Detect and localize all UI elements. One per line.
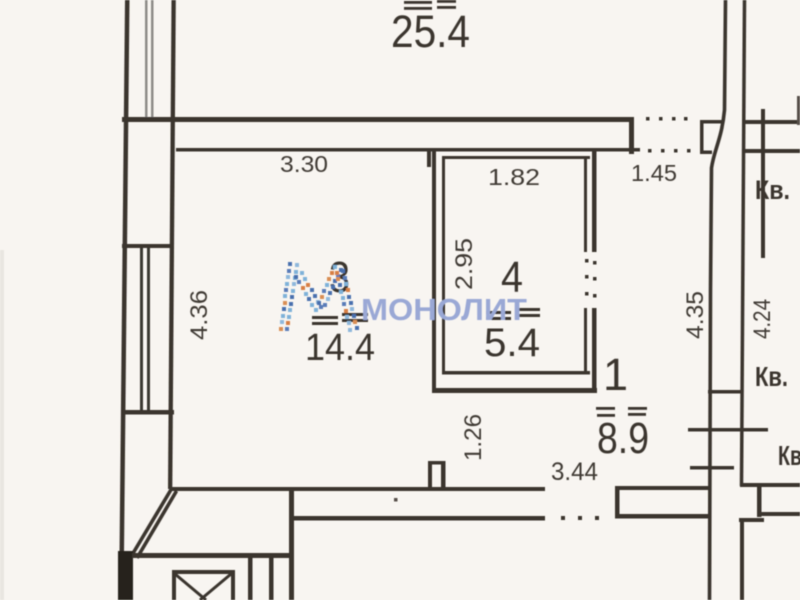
svg-text:2.95: 2.95 bbox=[451, 238, 478, 290]
svg-text:3.44: 3.44 bbox=[551, 458, 598, 486]
svg-text:1.26: 1.26 bbox=[460, 414, 487, 461]
svg-text:МОНОЛИТ: МОНОЛИТ bbox=[361, 292, 527, 327]
svg-text:Кв.: Кв. bbox=[755, 361, 788, 392]
svg-text:Кв: Кв bbox=[778, 440, 800, 471]
svg-text:1.45: 1.45 bbox=[631, 160, 677, 186]
svg-text:Кв.: Кв. bbox=[755, 175, 790, 205]
svg-text:4.35: 4.35 bbox=[682, 291, 709, 339]
svg-text:3.30: 3.30 bbox=[280, 151, 328, 177]
svg-text:25.4: 25.4 bbox=[391, 6, 470, 57]
svg-text:4.36: 4.36 bbox=[186, 290, 213, 340]
svg-text:1: 1 bbox=[603, 349, 628, 400]
svg-text:4.24: 4.24 bbox=[749, 299, 776, 339]
svg-text:1.82: 1.82 bbox=[488, 164, 540, 190]
svg-text:8.9: 8.9 bbox=[597, 414, 649, 463]
svg-text:14.4: 14.4 bbox=[305, 327, 375, 369]
svg-text:5.4: 5.4 bbox=[484, 321, 540, 365]
